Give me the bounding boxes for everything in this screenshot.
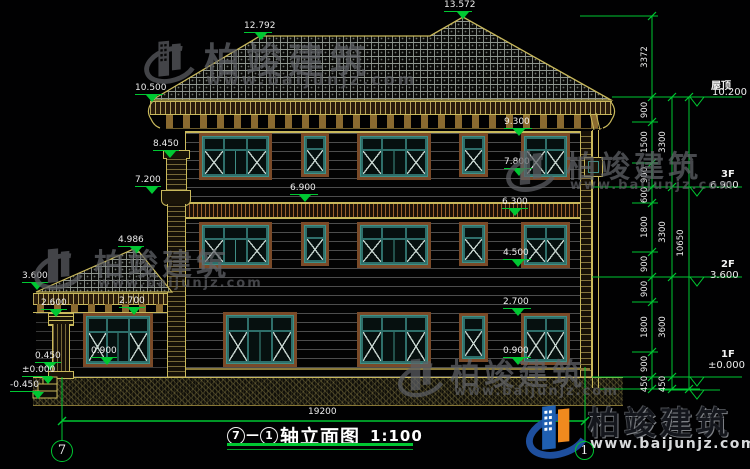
level-triangle-icon (512, 260, 524, 267)
level-marker-minus-0450: -0.450 (10, 381, 44, 399)
level-marker-band-top: 6.300 (502, 198, 528, 216)
level-triangle-icon (457, 12, 469, 19)
level-marker-peak: 13.572 (444, 1, 476, 19)
watermark-left (32, 238, 88, 298)
level-triangle-icon (512, 309, 524, 316)
dim-middle-1: 3300 (658, 207, 668, 257)
watermark-top (142, 30, 200, 92)
level-label: 6.900 (290, 184, 318, 193)
eave-scroll-left (148, 101, 160, 128)
level-marker-chimney-corbel: 7.200 (135, 176, 161, 194)
level-triangle-icon (146, 187, 158, 194)
watermark-right-url: www.baijunjz.com (570, 178, 735, 193)
title-dash: — (246, 428, 259, 443)
title-scale: 1:100 (370, 427, 423, 445)
level-label: 2.700 (503, 298, 531, 307)
total-width-dimension: 19200 (308, 407, 337, 417)
level-triangle-icon (128, 308, 140, 315)
level-triangle-icon (513, 129, 525, 136)
level-marker-porch-beam-bottom: 2.600 (41, 299, 67, 317)
flag-roof-value: 10.200 (712, 87, 747, 98)
watermark-left-url: www.baijunjz.com (98, 276, 263, 291)
level-label: 13.572 (444, 1, 476, 10)
level-label: 0.450 (35, 352, 61, 361)
level-triangle-icon (50, 310, 62, 317)
level-triangle-icon (299, 195, 311, 202)
title-underline-thin (227, 449, 413, 450)
level-marker-chimney-top: 8.450 (153, 140, 179, 158)
watermark-right (504, 140, 560, 200)
level-label: ±0.000 (22, 366, 55, 375)
level-label: 0.900 (91, 347, 117, 356)
level-label: 7.200 (135, 176, 161, 185)
dim-outer-0: 10650 (676, 218, 686, 268)
downspout-elbow (590, 113, 600, 130)
elevation-drawing-canvas: 19200 屋顶 10.200 3F 6.900 2F 3.600 1F ±0.… (0, 0, 750, 469)
level-label: 4.500 (503, 249, 531, 258)
level-marker-f3-level: 6.900 (290, 184, 318, 202)
level-triangle-icon (101, 358, 113, 365)
axis-bubble-1: 1 (575, 441, 594, 460)
title-axis-to-bubble: 1 (260, 427, 278, 445)
dim-inner-0: 3372 (640, 32, 650, 82)
watermark-logo-icon (142, 30, 200, 88)
level-label: 12.792 (244, 22, 276, 31)
watermark-bottom (396, 348, 448, 406)
level-triangle-icon (32, 392, 44, 399)
brand-logo-url: www.baijunjz.com (590, 436, 750, 452)
level-marker-w1-head: 2.700 (503, 298, 531, 316)
level-marker-w3-head: 9.300 (504, 118, 532, 136)
flag-1f-value: ±0.000 (708, 360, 745, 371)
flag-2f-name: 2F (721, 259, 735, 270)
dim-middle-2: 3600 (658, 302, 668, 352)
level-triangle-icon (164, 151, 176, 158)
level-label: 8.450 (153, 140, 179, 149)
level-marker-porch-sill: 0.900 (91, 347, 117, 365)
title-axis-from-bubble: 7 (227, 427, 245, 445)
level-marker-porch-beam-top: 2.700 (119, 297, 145, 315)
axis-bubble-7: 7 (51, 440, 73, 462)
watermark-top-url: www.baijunjz.com (206, 70, 417, 89)
level-label: -0.450 (10, 381, 44, 390)
eave-scroll-right (603, 101, 615, 128)
level-triangle-icon (146, 95, 158, 102)
level-label: 2.600 (41, 299, 67, 308)
level-label: 2.700 (119, 297, 145, 306)
title-underline-thick (227, 443, 413, 446)
flag-2f-value: 3.600 (710, 270, 739, 281)
flag-1f-name: 1F (721, 349, 735, 360)
level-label: 9.300 (504, 118, 532, 127)
level-marker-w2-sill: 4.500 (503, 249, 531, 267)
level-triangle-icon (509, 209, 521, 216)
